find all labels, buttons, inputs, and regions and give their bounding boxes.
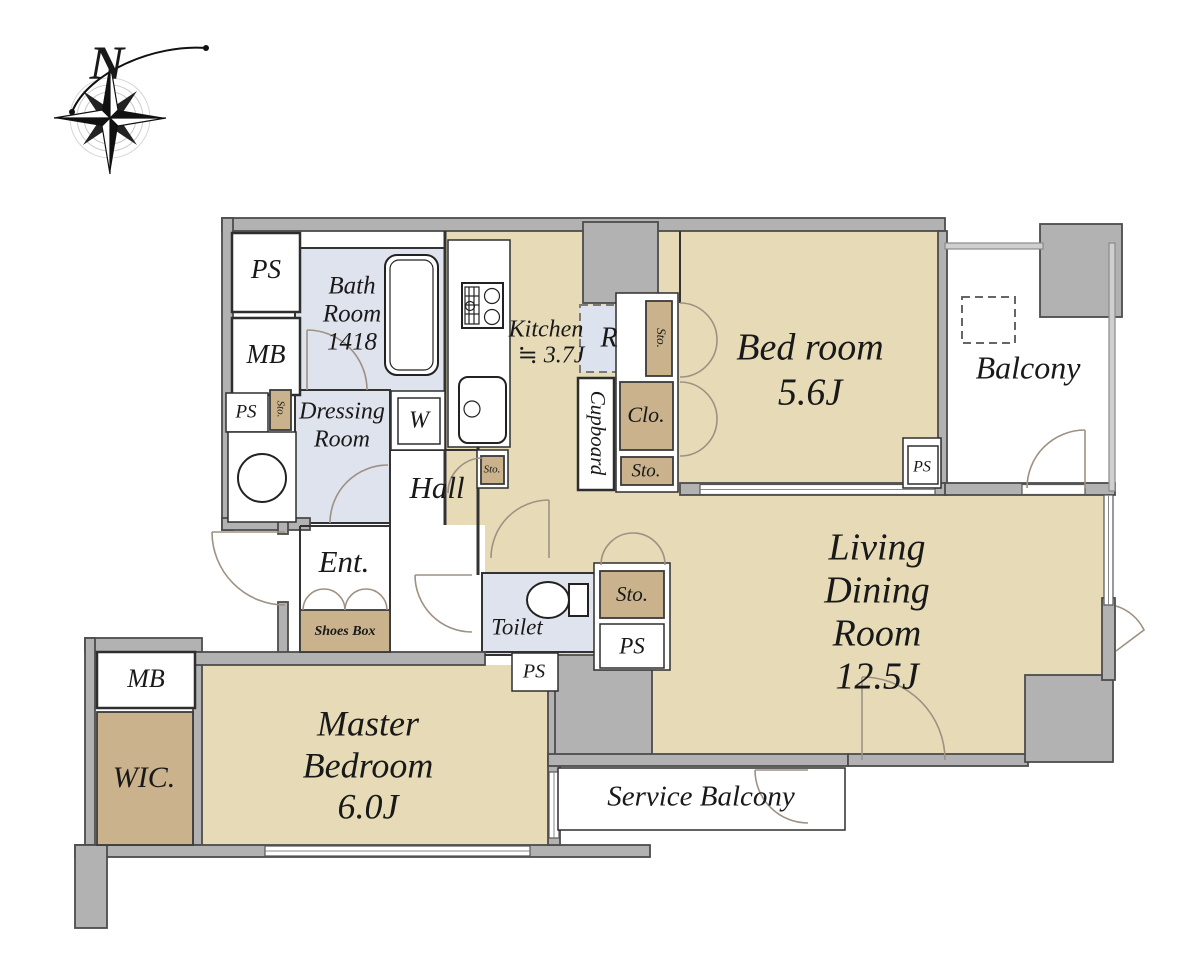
balcony-equipment-outline — [962, 297, 1015, 343]
compass-point — [110, 118, 166, 126]
toilet-tank — [569, 584, 588, 616]
wall-segment — [1102, 598, 1115, 680]
entrance-label: Ent. — [318, 544, 370, 579]
clo-label: Clo. — [627, 402, 664, 427]
ps-top-label: PS — [250, 254, 281, 284]
door-arc — [415, 575, 472, 632]
washer-label: W — [409, 408, 431, 434]
refrigerator-label: R — [599, 322, 617, 353]
kitchen-label-1: Kitchen — [508, 317, 584, 343]
toilet-icon — [527, 582, 588, 618]
living-label-3: Room — [832, 613, 922, 655]
compass-rose-icon: N — [54, 37, 209, 174]
sto-left-label: Sto. — [274, 401, 286, 418]
compass-point — [102, 118, 110, 174]
shoes-box-label: Shoes Box — [314, 624, 375, 639]
master-label-1: Master — [316, 703, 420, 743]
wall-segment — [548, 754, 848, 766]
compass-point — [110, 110, 166, 118]
bifold-door-arc — [303, 589, 324, 610]
wall-segment — [85, 638, 95, 845]
dressing-label-2: Room — [313, 427, 370, 453]
stove-icon — [462, 283, 503, 328]
compass-flourish-dot — [203, 45, 209, 51]
sink-icon — [459, 377, 506, 443]
bath-label-1: Bath — [328, 273, 375, 300]
toilet-label: Toilet — [491, 614, 543, 639]
mb-bottom-label: MB — [126, 664, 165, 693]
wall-segment — [848, 754, 1028, 766]
wall-segment — [278, 602, 288, 655]
sto-mid-label: Sto. — [631, 460, 660, 481]
ps-ld-label: PS — [618, 633, 645, 658]
sto-column-label: Sto. — [654, 328, 669, 348]
wic-label: WIC. — [113, 761, 176, 794]
wall-segment — [75, 845, 107, 928]
dressing-label-1: Dressing — [298, 399, 385, 425]
mb-top-label: MB — [246, 339, 286, 369]
bedroom-size-label: 5.6J — [778, 372, 845, 414]
balcony-railing — [1109, 243, 1115, 491]
living-size-label: 12.5J — [835, 656, 921, 698]
bifold-door-arc — [345, 589, 366, 610]
compass-point — [110, 118, 118, 174]
wall-segment — [195, 652, 485, 665]
ps-toilet-label: PS — [522, 661, 545, 683]
master-size-label: 6.0J — [338, 786, 401, 826]
floor-plan-canvas: N PS MB Bath Room 1418 PS Sto. Dressing … — [0, 0, 1200, 968]
window — [1022, 485, 1085, 495]
balcony-railing — [945, 243, 1043, 249]
door-arc — [212, 532, 285, 605]
kitchen-label-2: ≒ 3.7J — [518, 343, 586, 369]
hall-label: Hall — [408, 470, 464, 505]
pillar — [555, 655, 652, 765]
compass-north-label: N — [89, 37, 127, 90]
ps-left-label: PS — [234, 401, 257, 422]
service-balcony-label: Service Balcony — [607, 781, 795, 813]
bath-label-2: Room — [322, 301, 381, 328]
wall-segment — [583, 222, 658, 303]
bifold-door-arc — [366, 589, 387, 610]
wall-segment — [85, 638, 202, 652]
pillar — [1025, 675, 1113, 762]
ps-bedroom-label: PS — [912, 459, 931, 476]
sto-ld-label: Sto. — [616, 582, 648, 606]
toilet-bowl — [527, 582, 569, 618]
floor-plan-svg: N PS MB Bath Room 1418 PS Sto. Dressing … — [0, 0, 1200, 968]
living-label-1: Living — [827, 527, 925, 569]
sto-counter-label: Sto. — [484, 464, 501, 476]
kitchen-floor-3 — [658, 231, 680, 303]
casement-window-arc — [1116, 606, 1144, 651]
compass-flourish-dot — [69, 109, 75, 115]
door-arc — [1027, 430, 1085, 488]
bifold-door-arc — [324, 589, 345, 610]
bedroom-name-label: Bed room — [736, 327, 883, 369]
balcony-label: Balcony — [976, 349, 1082, 385]
cupboard-label: Cupboard — [586, 391, 610, 476]
master-label-2: Bedroom — [303, 745, 434, 785]
bath-label-3: 1418 — [327, 329, 378, 356]
compass-point — [54, 118, 110, 126]
washbasin-icon — [238, 454, 286, 502]
bathtub-icon — [385, 255, 438, 375]
living-label-2: Dining — [823, 570, 930, 612]
sink-body — [459, 377, 506, 443]
compass-point — [54, 110, 110, 118]
